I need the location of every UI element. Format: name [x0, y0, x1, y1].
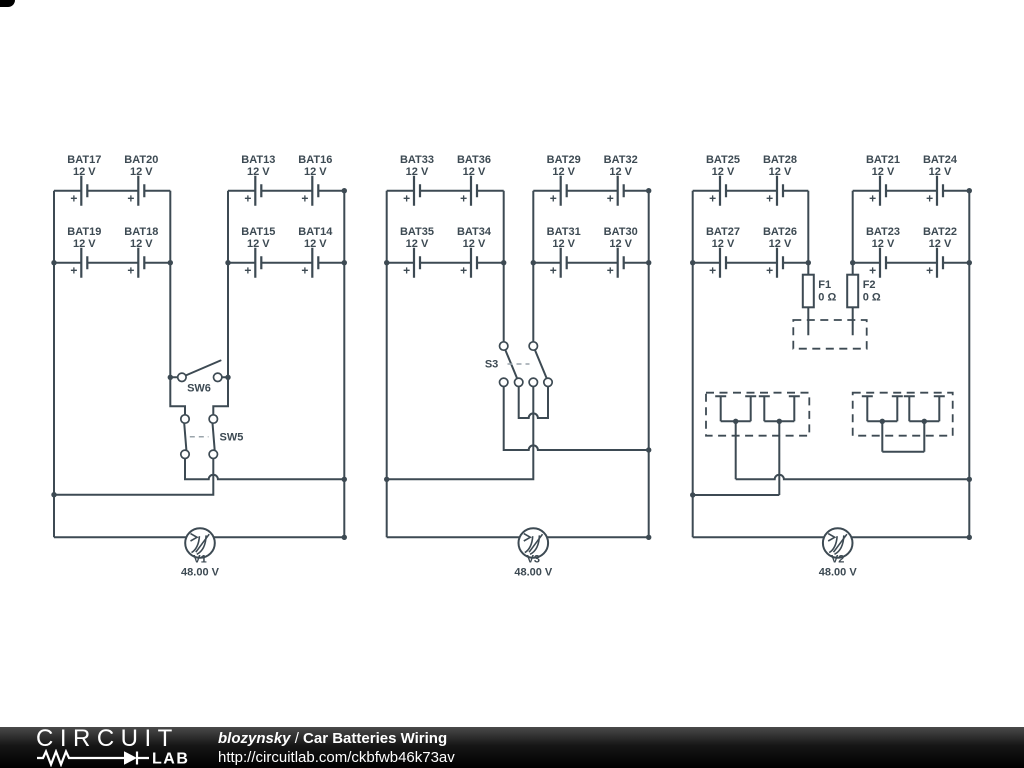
battery-voltage: 12 V — [872, 166, 895, 178]
battery-label: BAT15 — [241, 226, 275, 238]
battery-plus-sign: + — [301, 264, 308, 278]
battery-voltage: 12 V — [609, 166, 632, 178]
battery-plus-sign: + — [127, 264, 134, 278]
battery-plus-sign: + — [70, 192, 77, 206]
battery-label: BAT35 — [400, 226, 434, 238]
battery-label: BAT25 — [706, 154, 740, 166]
schematic-url: http://circuitlab.com/ckbfwb46k73av — [218, 748, 455, 767]
meter-value: 48.00 V — [514, 567, 553, 579]
battery-plus-sign: + — [550, 192, 557, 206]
battery-label: BAT20 — [124, 154, 158, 166]
battery-voltage: 12 V — [872, 238, 895, 250]
battery-voltage: 12 V — [769, 238, 792, 250]
battery-label: BAT16 — [298, 154, 332, 166]
meter-label: V1 — [193, 554, 206, 566]
battery-label: BAT17 — [67, 154, 101, 166]
schematic-title-line: blozynsky / Car Batteries Wiring — [218, 729, 455, 748]
author-name: blozynsky — [218, 730, 291, 747]
battery-voltage: 12 V — [73, 166, 96, 178]
battery-plus-sign: + — [926, 192, 933, 206]
switch-label-sw6: SW6 — [187, 383, 211, 395]
battery-label: BAT26 — [763, 226, 797, 238]
battery-label: BAT34 — [457, 226, 492, 238]
battery-plus-sign: + — [244, 264, 251, 278]
battery-plus-sign: + — [926, 264, 933, 278]
battery-plus-sign: + — [460, 264, 467, 278]
battery-plus-sign: + — [766, 264, 773, 278]
battery-voltage: 12 V — [130, 238, 153, 250]
logo-lab-text: LAB — [152, 751, 189, 768]
battery-voltage: 12 V — [406, 238, 429, 250]
battery-voltage: 12 V — [304, 238, 327, 250]
battery-voltage: 12 V — [769, 166, 792, 178]
battery-voltage: 12 V — [73, 238, 96, 250]
battery-voltage: 12 V — [929, 166, 952, 178]
battery-voltage: 12 V — [247, 238, 270, 250]
schematic-title: Car Batteries Wiring — [303, 730, 447, 747]
fuse-label-f1: F1 — [818, 279, 831, 291]
fuse-label-f2: F2 — [863, 279, 876, 291]
battery-label: BAT13 — [241, 154, 275, 166]
battery-label: BAT19 — [67, 226, 101, 238]
logo-circuit-text: CIRCUIT — [36, 728, 206, 749]
battery-voltage: 12 V — [552, 166, 575, 178]
battery-plus-sign: + — [709, 192, 716, 206]
battery-plus-sign: + — [403, 264, 410, 278]
battery-plus-sign: + — [709, 264, 716, 278]
battery-voltage: 12 V — [304, 166, 327, 178]
battery-plus-sign: + — [869, 192, 876, 206]
battery-label: BAT33 — [400, 154, 434, 166]
meter-value: 48.00 V — [181, 567, 220, 579]
battery-voltage: 12 V — [712, 238, 735, 250]
battery-label: BAT29 — [547, 154, 581, 166]
battery-short-plates[interactable] — [87, 184, 943, 269]
fuse-f1-body[interactable] — [803, 275, 814, 308]
battery-plus-sign: + — [607, 264, 614, 278]
battery-label: BAT23 — [866, 226, 900, 238]
battery-plus-sign: + — [607, 192, 614, 206]
circuit-schematic: BAT17 12 V BAT20 12 V BAT13 12 V BAT16 1… — [0, 0, 1024, 710]
battery-plus-sign: + — [127, 192, 134, 206]
meter-label: V2 — [831, 554, 844, 566]
battery-plus-sign: + — [244, 192, 251, 206]
footer-bar: CIRCUIT LAB blozynsky / Car Batteries Wi… — [0, 727, 1024, 768]
circuitlab-logo: CIRCUIT LAB — [36, 728, 206, 767]
circuit-1 — [54, 191, 344, 538]
switch-label-sw5: SW5 — [220, 432, 244, 444]
battery-plus-sign: + — [301, 192, 308, 206]
battery-label: BAT36 — [457, 154, 491, 166]
fuse-f2-body[interactable] — [847, 275, 858, 308]
battery-voltage: 12 V — [463, 238, 486, 250]
battery-voltage: 12 V — [406, 166, 429, 178]
battery-label: BAT28 — [763, 154, 797, 166]
battery-label: BAT30 — [604, 226, 638, 238]
connector-pins — [715, 396, 945, 421]
circuit-3-labels: BAT25 12 V BAT28 12 V BAT21 12 V BAT24 1… — [706, 154, 958, 578]
circuit-1-wires — [54, 191, 344, 538]
battery-label: BAT31 — [547, 226, 581, 238]
battery-label: BAT18 — [124, 226, 158, 238]
battery-plus-sign: + — [70, 264, 77, 278]
battery-plus-sign: + — [403, 192, 410, 206]
meter-value: 48.00 V — [819, 567, 858, 579]
connector-box-top — [793, 320, 866, 349]
battery-label: BAT14 — [298, 226, 333, 238]
battery-voltage: 12 V — [552, 238, 575, 250]
battery-label: BAT22 — [923, 226, 957, 238]
battery-voltage: 12 V — [130, 166, 153, 178]
circuit-2-labels: BAT33 12 V BAT36 12 V BAT29 12 V BAT32 1… — [400, 154, 638, 578]
battery-voltage: 12 V — [609, 238, 632, 250]
battery-label: BAT32 — [604, 154, 638, 166]
fuse-value-f1: 0 Ω — [818, 292, 836, 304]
battery-plus-sign: + — [766, 192, 773, 206]
battery-label: BAT27 — [706, 226, 740, 238]
battery-voltage: 12 V — [463, 166, 486, 178]
meter-label: V3 — [527, 554, 540, 566]
footer-meta: blozynsky / Car Batteries Wiring http://… — [218, 729, 455, 767]
battery-plus-sign: + — [460, 192, 467, 206]
battery-plus-sign: + — [550, 264, 557, 278]
fuse-value-f2: 0 Ω — [863, 292, 881, 304]
battery-label: BAT21 — [866, 154, 900, 166]
battery-plus-sign: + — [869, 264, 876, 278]
battery-voltage: 12 V — [712, 166, 735, 178]
separator: / — [291, 730, 304, 747]
switch-label-s3: S3 — [485, 359, 498, 371]
circuit-1-labels: BAT17 12 V BAT20 12 V BAT13 12 V BAT16 1… — [67, 154, 333, 578]
battery-label: BAT24 — [923, 154, 958, 166]
battery-voltage: 12 V — [247, 166, 270, 178]
battery-voltage: 12 V — [929, 238, 952, 250]
